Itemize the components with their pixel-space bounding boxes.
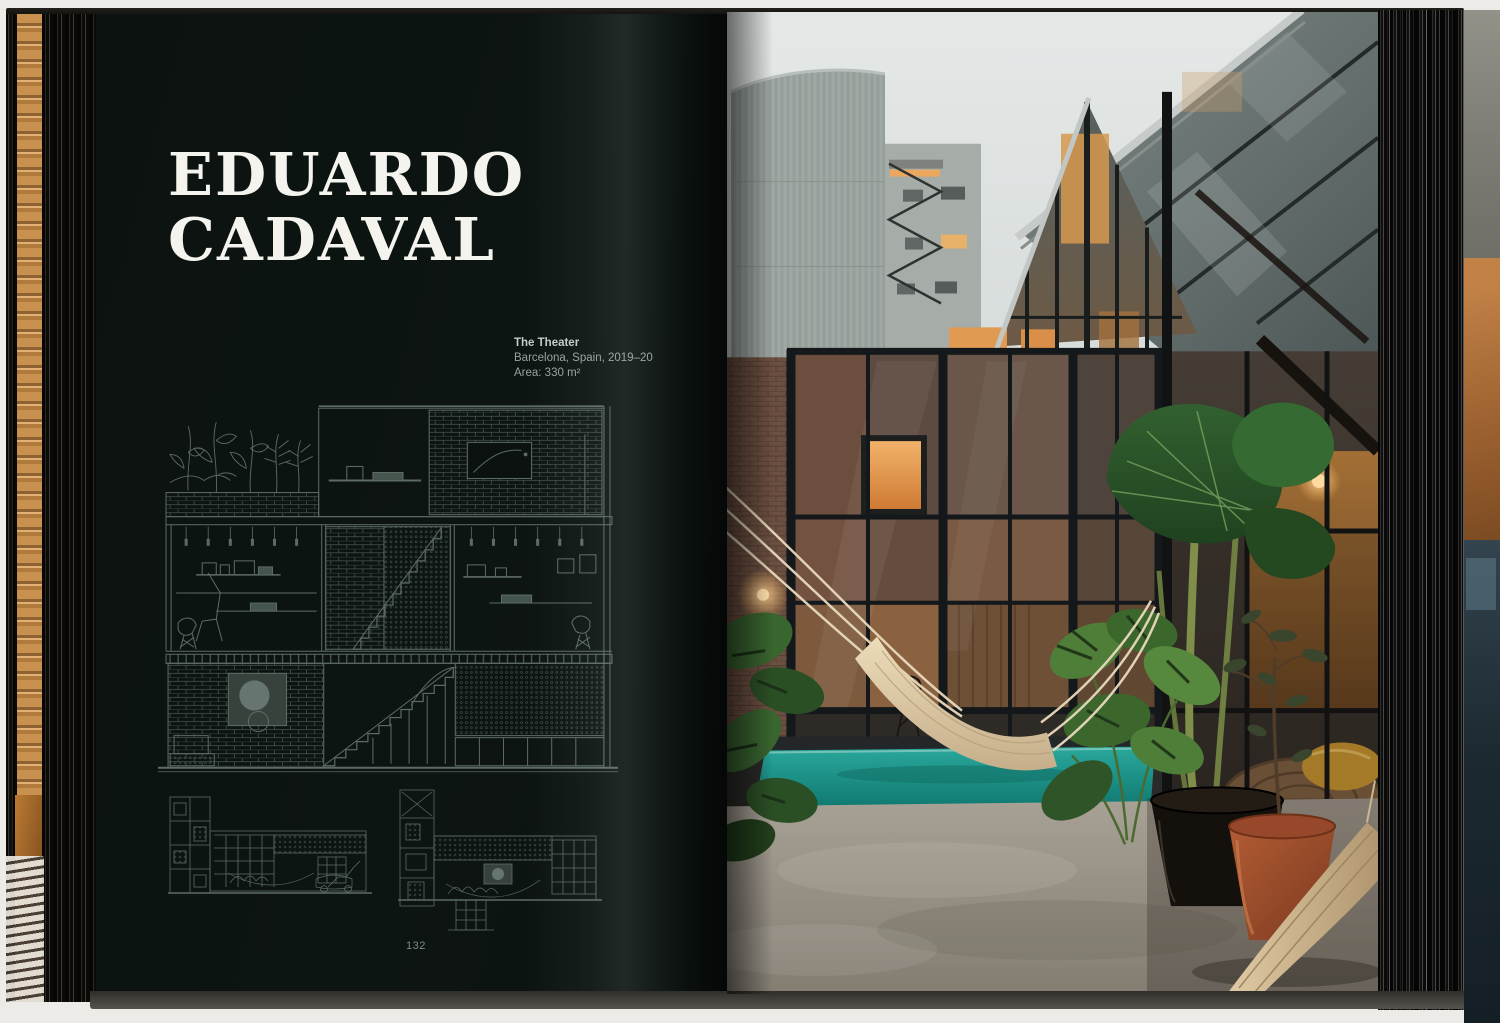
site-section-drawing-left <box>168 795 372 901</box>
fore-edge-glints <box>1378 10 1464 1010</box>
title-line-1: EDUARDO <box>168 142 525 207</box>
page-title: EDUARDO CADAVAL <box>168 142 525 272</box>
glass-facade <box>787 349 1163 750</box>
book-spread-photo: EDUARDO CADAVAL The Theater Barcelona, S… <box>0 0 1500 1023</box>
wood-texture <box>1464 258 1500 540</box>
stone-texture <box>1464 10 1500 258</box>
background-tower <box>885 144 981 360</box>
courtyard-photo <box>727 12 1378 994</box>
right-page-photo <box>727 12 1378 994</box>
gutter-shadow-left <box>657 14 727 993</box>
slate-texture <box>1464 540 1500 1023</box>
lit-window <box>867 441 921 509</box>
gutter-shadow-right <box>727 12 773 994</box>
background-right <box>1464 10 1500 1023</box>
fore-edge-pages <box>1378 10 1464 1010</box>
page-number: 132 <box>406 940 426 952</box>
dark-page-edges <box>42 14 96 1002</box>
spine-edge <box>6 14 15 1002</box>
left-page: EDUARDO CADAVAL The Theater Barcelona, S… <box>96 14 727 993</box>
white-page-corner <box>6 856 44 1002</box>
book-bottom-edge <box>90 991 1464 1009</box>
title-line-2: CADAVAL <box>168 207 525 272</box>
left-page-block-edges <box>6 14 96 1002</box>
tan-page-edges <box>17 14 42 795</box>
